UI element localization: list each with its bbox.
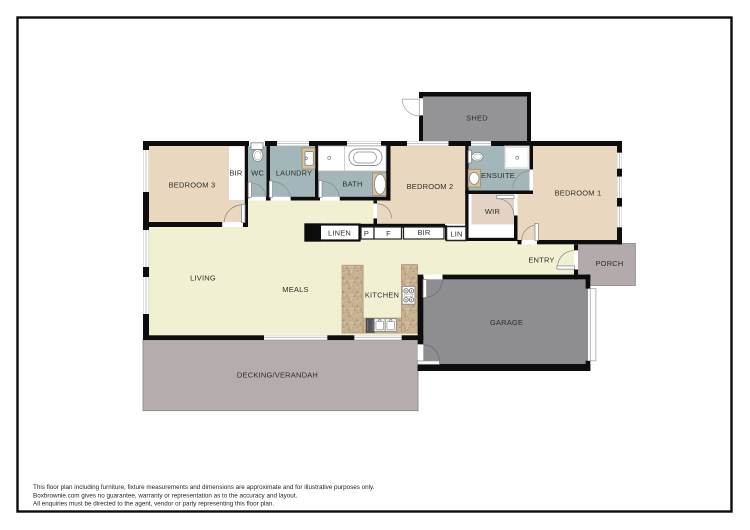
svg-text:F: F	[386, 229, 391, 238]
svg-text:ENSUITE: ENSUITE	[481, 171, 515, 180]
svg-text:BEDROOM 2: BEDROOM 2	[407, 182, 454, 191]
svg-text:MEALS: MEALS	[282, 285, 308, 294]
svg-text:All enquiries must be directed: All enquiries must be directed to the ag…	[33, 501, 274, 508]
svg-text:WC: WC	[251, 169, 264, 178]
svg-text:GARAGE: GARAGE	[490, 318, 523, 327]
svg-text:BATH: BATH	[342, 180, 362, 189]
svg-text:WIR: WIR	[485, 207, 501, 216]
svg-text:DECKING/VERANDAH: DECKING/VERANDAH	[237, 371, 318, 380]
svg-text:BIR: BIR	[417, 228, 430, 237]
svg-text:P: P	[364, 229, 369, 238]
svg-text:LIVING: LIVING	[190, 274, 216, 283]
svg-text:PORCH: PORCH	[595, 259, 623, 268]
svg-text:LAUNDRY: LAUNDRY	[276, 169, 312, 178]
svg-text:BEDROOM 1: BEDROOM 1	[555, 189, 602, 198]
svg-text:BEDROOM 3: BEDROOM 3	[169, 181, 216, 190]
svg-text:Boxbrownie.com gives no guaran: Boxbrownie.com gives no guarantee, warra…	[33, 492, 298, 499]
svg-text:SHED: SHED	[466, 114, 488, 123]
svg-text:LIN: LIN	[450, 229, 462, 238]
svg-text:BIR: BIR	[229, 169, 242, 178]
svg-text:LINEN: LINEN	[328, 229, 351, 238]
svg-text:KITCHEN: KITCHEN	[365, 291, 399, 300]
svg-text:This floor plan including furn: This floor plan including furniture, fix…	[33, 484, 375, 491]
svg-text:ENTRY: ENTRY	[528, 256, 554, 265]
